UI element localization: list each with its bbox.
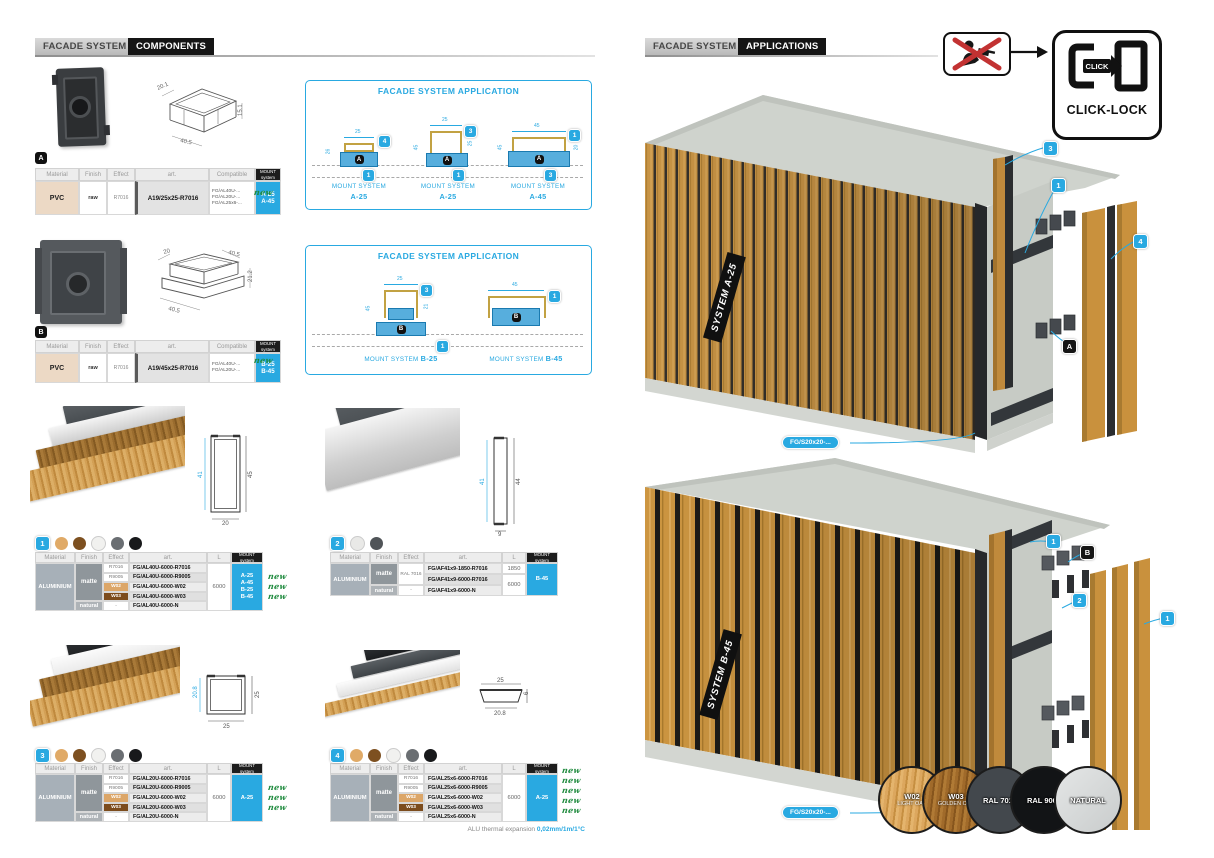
dim-label: 25 xyxy=(468,141,473,147)
new-flag: new xyxy=(561,766,581,774)
dim-label: 45 xyxy=(248,471,254,478)
profile-4-finishes: 4 xyxy=(330,748,437,763)
part-badge: B xyxy=(1080,545,1095,560)
cell-art: FG/AL20U-6000-W03 xyxy=(129,803,207,813)
cell-finish: natural xyxy=(75,812,103,822)
new-flag: new xyxy=(561,776,581,784)
new-flag: new xyxy=(267,582,287,590)
cell-art: FG/AL25x6-6000-R9005 xyxy=(424,784,502,794)
col-header: Finish xyxy=(79,168,107,181)
component-a-drawing: 20.1 40.5 15.1 xyxy=(150,76,250,152)
left-page-section: COMPONENTS xyxy=(128,38,214,55)
cell-effect: R9005 xyxy=(103,573,129,583)
finish-dot-black xyxy=(129,749,142,762)
cell-compatible: FG/AL40U-...FG/AL20U-... xyxy=(209,353,255,383)
profile-badge: 2 xyxy=(330,536,345,551)
dim-label: 45 xyxy=(512,283,518,288)
mount-system-label: MOUNT SYSTEMA-45 xyxy=(493,183,583,202)
col-header: L xyxy=(502,763,526,774)
col-header: Material xyxy=(35,168,79,181)
col-header: art. xyxy=(424,552,502,563)
finish-dot-w02 xyxy=(55,537,68,550)
cell-effect: - xyxy=(398,585,424,596)
dim-label: 26 xyxy=(326,149,331,155)
profile-1-finishes: 1 xyxy=(35,536,142,551)
cell-finish: natural xyxy=(75,601,103,611)
part-badge: 1 xyxy=(436,340,449,353)
cell-finish: matte xyxy=(75,563,103,601)
cell-effect: - xyxy=(398,812,424,822)
profile-3-table: Material Finish Effect art. L MOUNTsyste… xyxy=(35,763,263,822)
new-flag: new xyxy=(267,592,287,600)
profile-callout: FG/S20x20-... xyxy=(782,436,839,449)
dim-label: 20 xyxy=(574,145,579,151)
application-title: FACADE SYSTEM APPLICATION xyxy=(306,81,591,96)
cell-effect: R7016 xyxy=(398,774,424,784)
col-header-mount: MOUNTsystem xyxy=(231,763,263,774)
cell-effect: W03 xyxy=(103,803,129,813)
cell-effect: R7016 xyxy=(103,563,129,573)
profile-1-photo xyxy=(30,406,185,530)
col-header: L xyxy=(207,552,231,563)
finish-dot-gray xyxy=(111,749,124,762)
component-a-marker: A xyxy=(35,152,47,164)
dim-label: 44 xyxy=(516,478,522,485)
finish-dot-white xyxy=(91,536,106,551)
cell-material: PVC xyxy=(35,353,79,383)
cell-mount: A-25A-45B-25B-45 xyxy=(231,563,263,611)
new-flag: new xyxy=(267,783,287,791)
dim-label: 25 xyxy=(397,277,403,282)
marker-text: A xyxy=(38,155,43,162)
application-box-a: FACADE SYSTEM APPLICATION 25 26 6 A 4 1 … xyxy=(305,80,592,210)
cell-finish: matte xyxy=(75,774,103,812)
finish-dot-w03 xyxy=(73,537,86,550)
profile-badge: 4 xyxy=(330,748,345,763)
mount-system-label: MOUNT SYSTEM B-25 xyxy=(326,354,476,365)
cell-length: 6000 xyxy=(207,563,231,611)
part-badge: 3 xyxy=(1043,141,1058,156)
cell-finish: matte xyxy=(370,563,398,585)
dim-label: 21.2 xyxy=(248,270,254,282)
profile-3-photo xyxy=(30,645,180,745)
part-badge: 1 xyxy=(1051,178,1066,193)
profile-2-finishes: 2 xyxy=(330,536,383,551)
cell-art: FG/AF41x9-6000-R7016 xyxy=(424,574,502,585)
profile-1-drawing: 41 45 20 xyxy=(196,428,254,526)
cell-art: FG/AL40U-6000-R7016 xyxy=(129,563,207,573)
col-header: Finish xyxy=(75,763,103,774)
cell-art: FG/AL40U-6000-W03 xyxy=(129,592,207,602)
left-section-text: COMPONENTS xyxy=(136,41,206,52)
col-header: art. xyxy=(129,763,207,774)
col-header: art. xyxy=(129,552,207,563)
dim-label: 45 xyxy=(534,124,540,129)
col-header-mount: MOUNTsystem xyxy=(526,552,558,563)
cell-art: FG/AL40U-6000-W02 xyxy=(129,582,207,592)
catalog-page: { "colors": { "accent": "#29a9e1", "new_… xyxy=(0,0,1214,858)
part-badge: A xyxy=(1062,339,1077,354)
dim-label: 9 xyxy=(498,532,502,536)
finish-dot-w03 xyxy=(73,749,86,762)
dim-label: 25 xyxy=(497,678,504,684)
cell-art: A19/45x25-R7016 xyxy=(135,353,209,383)
cell-effect: W02 xyxy=(103,582,129,592)
col-header: Effect xyxy=(107,340,135,353)
finish-dot-w03 xyxy=(368,749,381,762)
profile-2-drawing: 41 44 9 xyxy=(478,430,522,536)
col-header-mount: MOUNTsystem xyxy=(255,340,281,353)
col-header: Finish xyxy=(75,552,103,563)
col-header: Material xyxy=(330,763,370,774)
cell-material: ALUMINIUM xyxy=(35,563,75,611)
col-header-mount: MOUNTsystem xyxy=(255,168,281,181)
cell-art: FG/AL25x6-6000-W03 xyxy=(424,803,502,813)
new-flag: new xyxy=(253,356,273,364)
part-badge: 1 xyxy=(548,290,561,303)
profile-badge: 1 xyxy=(35,536,50,551)
part-badge: 1 xyxy=(1160,611,1175,626)
component-a-table: Material Finish Effect art. Compatible M… xyxy=(35,168,281,215)
finish-dot-w02 xyxy=(350,749,363,762)
col-header: Effect xyxy=(398,552,424,563)
marker-text: B xyxy=(38,329,43,336)
col-header-mount: MOUNTsystem xyxy=(231,552,263,563)
cell-effect: W03 xyxy=(398,803,424,813)
col-header: Finish xyxy=(370,763,398,774)
cell-art: FG/AF41x9-6000-N xyxy=(424,585,502,596)
cell-art: FG/AL20U-6000-N xyxy=(129,812,207,822)
part-badge: 3 xyxy=(420,284,433,297)
part-badge: 2 xyxy=(1072,593,1087,608)
dim-label: 25 xyxy=(355,130,361,135)
new-flag: new xyxy=(267,572,287,580)
no-power-tools-icon xyxy=(943,32,1011,76)
finish-dot-gray xyxy=(111,537,124,550)
cell-art: A19/25x25-R7016 xyxy=(135,181,209,215)
cell-art: FG/AL20U-6000-R9005 xyxy=(129,784,207,794)
component-a-photo xyxy=(56,67,107,147)
dim-label: 25 xyxy=(255,691,261,698)
cell-effect: R9005 xyxy=(103,784,129,794)
component-b-photo xyxy=(40,240,122,324)
profile-4-drawing: 25 20.8 6 xyxy=(472,676,530,716)
finish-dot-light xyxy=(350,536,365,551)
cell-finish: matte xyxy=(370,774,398,812)
part-badge: 1 xyxy=(452,169,465,182)
arrow-icon xyxy=(1010,42,1048,62)
clip-shape: B xyxy=(376,322,426,336)
new-flag: new xyxy=(267,793,287,801)
cell-material: ALUMINIUM xyxy=(35,774,75,822)
clip-shape: A xyxy=(340,152,378,167)
swatch-natural: NATURAL xyxy=(1054,766,1122,834)
cell-effect: - xyxy=(103,601,129,611)
finish-dot-black xyxy=(129,537,142,550)
new-flag: new xyxy=(561,806,581,814)
col-header: Compatible xyxy=(209,340,255,353)
cell-finish: raw xyxy=(79,353,107,383)
profile-3-finishes: 3 xyxy=(35,748,142,763)
dim-label: 20.8 xyxy=(193,686,199,698)
col-header: Finish xyxy=(370,552,398,563)
cell-mount: B-45 xyxy=(526,563,558,596)
col-header: L xyxy=(207,763,231,774)
cell-material: PVC xyxy=(35,181,79,215)
dim-label: 25 xyxy=(442,118,448,123)
left-title-text: FACADE SYSTEM xyxy=(43,41,126,52)
new-flag: new xyxy=(561,786,581,794)
cell-length: 6000 xyxy=(502,774,526,822)
left-header-rule xyxy=(35,55,595,57)
cell-art: FG/AL20U-6000-W02 xyxy=(129,793,207,803)
col-header: Material xyxy=(35,340,79,353)
mount-system-label: MOUNT SYSTEM B-45 xyxy=(466,354,586,365)
right-page-section: APPLICATIONS xyxy=(738,38,826,55)
cell-art: FG/AF41x9-1850-R7016 xyxy=(424,563,502,574)
col-header: art. xyxy=(424,763,502,774)
col-header: Effect xyxy=(398,763,424,774)
cell-finish: natural xyxy=(370,812,398,822)
col-header: Finish xyxy=(79,340,107,353)
dim-label: 20.8 xyxy=(494,711,506,716)
cell-art: FG/AL20U-6000-R7016 xyxy=(129,774,207,784)
col-header: art. xyxy=(135,340,209,353)
cell-effect: W02 xyxy=(398,793,424,803)
right-title-text: FACADE SYSTEM xyxy=(653,41,736,52)
cell-compatible: FG/AL40U-...FG/AL20U-...FG/AL25x6-... xyxy=(209,181,255,215)
cell-effect: - xyxy=(103,812,129,822)
clip-shape: A xyxy=(508,151,570,167)
left-page-title: FACADE SYSTEM xyxy=(35,38,134,55)
profile-badge: 3 xyxy=(35,748,50,763)
cell-effect: R7016 xyxy=(107,181,135,215)
profile-4-table: Material Finish Effect art. L MOUNTsyste… xyxy=(330,763,558,822)
dim-label: 15.1 xyxy=(238,104,244,116)
application-title: FACADE SYSTEM APPLICATION xyxy=(306,246,591,261)
col-header: Effect xyxy=(103,552,129,563)
finish-dot-white xyxy=(91,748,106,763)
cell-length: 6000 xyxy=(502,574,526,596)
cell-finish: natural xyxy=(370,585,398,596)
finish-dot-dark xyxy=(370,537,383,550)
dim-label: 41 xyxy=(198,471,204,478)
new-flag: new xyxy=(561,796,581,804)
component-b-drawing: 20 40.5 21.2 40.5 xyxy=(140,246,258,318)
dim-label: 20 xyxy=(163,248,172,256)
col-header-mount: MOUNTsystem xyxy=(526,763,558,774)
click-text: CLICK xyxy=(1086,62,1109,71)
col-header: Effect xyxy=(103,763,129,774)
profile-callout: FG/S20x20-... xyxy=(782,806,839,819)
dim-label: 20.1 xyxy=(156,81,170,92)
part-badge: 4 xyxy=(378,135,391,148)
part-badge: 1 xyxy=(1046,534,1061,549)
dim-label: 45 xyxy=(366,306,371,312)
cell-mount: A-25 xyxy=(231,774,263,822)
dim-label: 45 xyxy=(498,145,503,151)
new-flag: new xyxy=(267,803,287,811)
finish-dot-black xyxy=(424,749,437,762)
cell-length: 6000 xyxy=(207,774,231,822)
cell-effect: R7016 xyxy=(107,353,135,383)
mount-system-label: MOUNT SYSTEMA-25 xyxy=(403,183,493,202)
profile-4-photo xyxy=(325,650,460,743)
dim-label: 20 xyxy=(222,521,229,526)
right-section-text: APPLICATIONS xyxy=(746,41,818,52)
right-page-title: FACADE SYSTEM xyxy=(645,38,744,55)
clip-shape: B xyxy=(492,308,540,326)
cell-length: 1850 xyxy=(502,563,526,574)
cell-effect: R9005 xyxy=(398,784,424,794)
profile-1-table: Material Finish Effect art. L MOUNTsyste… xyxy=(35,552,263,611)
col-header: Compatible xyxy=(209,168,255,181)
col-header: Material xyxy=(35,552,75,563)
cell-mount: A-25 xyxy=(526,774,558,822)
component-b-table: Material Finish Effect art. Compatible M… xyxy=(35,340,281,383)
cell-effect: R7016 xyxy=(103,774,129,784)
dim-label: 41 xyxy=(480,478,486,485)
part-badge: 3 xyxy=(544,169,557,182)
component-b-marker: B xyxy=(35,326,47,338)
part-badge: 1 xyxy=(568,129,581,142)
new-flag: new xyxy=(253,188,273,196)
cell-material: ALUMINIUM xyxy=(330,774,370,822)
cell-art: FG/AL25x6-6000-N xyxy=(424,812,502,822)
thermal-expansion-value: 0,02mm/1m/1°C xyxy=(537,826,585,833)
cell-effect: W02 xyxy=(103,793,129,803)
col-header: Material xyxy=(330,552,370,563)
dim-label: 21 xyxy=(424,304,429,310)
cell-finish: raw xyxy=(79,181,107,215)
profile-2-photo xyxy=(325,408,460,510)
dim-label: 25 xyxy=(223,724,230,730)
cell-effect: W03 xyxy=(103,592,129,602)
col-header: Effect xyxy=(107,168,135,181)
part-badge: 4 xyxy=(1133,234,1148,249)
profile-2-table: Material Finish Effect art. L MOUNTsyste… xyxy=(330,552,558,596)
part-badge: 1 xyxy=(362,169,375,182)
col-header: art. xyxy=(135,168,209,181)
profile-3-drawing: 20.8 25 25 xyxy=(187,664,263,732)
cell-effect: RAL 7016 xyxy=(398,563,424,585)
col-header: Material xyxy=(35,763,75,774)
application-box-b: FACADE SYSTEM APPLICATION 1 25 45 21 B 3… xyxy=(305,245,592,375)
cell-art: FG/AL25x6-6000-R7016 xyxy=(424,774,502,784)
part-badge: 3 xyxy=(464,125,477,138)
cell-art: FG/AL40U-6000-N xyxy=(129,601,207,611)
thermal-expansion-note: ALU thermal expansion 0,02mm/1m/1°C xyxy=(330,826,585,833)
clip-shape xyxy=(388,308,414,320)
cell-art: FG/AL40U-6000-R9005 xyxy=(129,573,207,583)
cell-material: ALUMINIUM xyxy=(330,563,370,596)
right-header-rule xyxy=(645,55,938,57)
dim-label: 45 xyxy=(414,145,419,151)
dim-label: 40.5 xyxy=(168,306,181,315)
finish-dot-gray xyxy=(406,749,419,762)
col-header: L xyxy=(502,552,526,563)
clip-shape: A xyxy=(426,153,468,167)
cell-art: FG/AL25x6-6000-W02 xyxy=(424,793,502,803)
finish-dot-white xyxy=(386,748,401,763)
mount-system-label: MOUNT SYSTEMA-25 xyxy=(314,183,404,202)
finish-dot-w02 xyxy=(55,749,68,762)
